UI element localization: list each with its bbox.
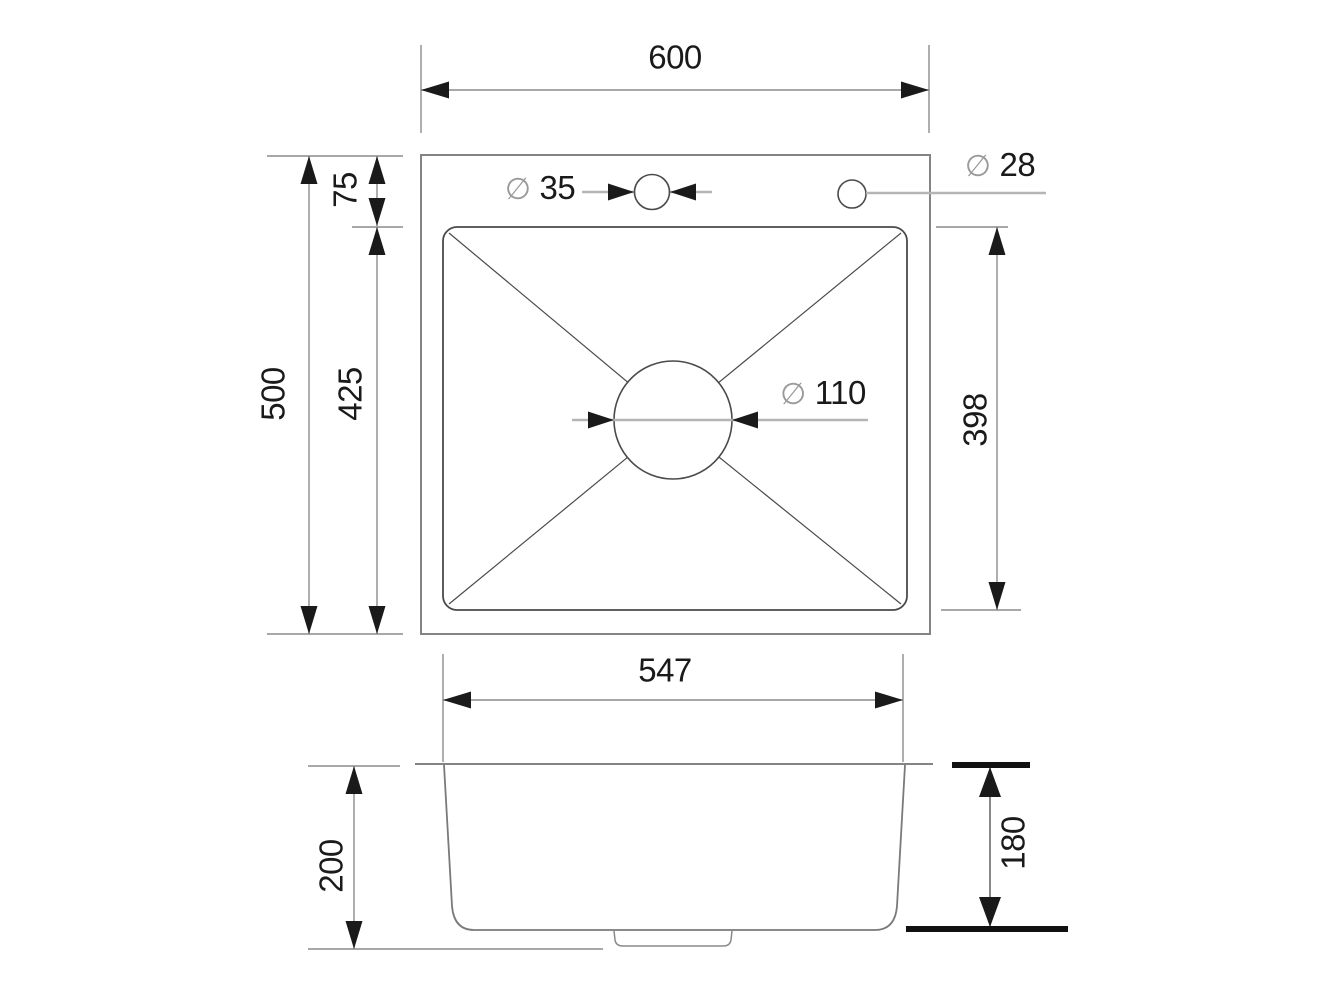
sink-technical-drawing: 600 547 500 75 425 398 200 180 ∅35 ∅28 ∅… — [0, 0, 1335, 1000]
dia-value-28: 28 — [999, 146, 1035, 183]
dim-label-180: 180 — [997, 816, 1030, 870]
dia-label-faucet: ∅35 — [505, 171, 575, 205]
dim-label-75: 75 — [329, 172, 362, 208]
dia-label-drain: ∅110 — [780, 376, 866, 410]
faucet-hole-outline — [635, 175, 670, 210]
side-view — [415, 764, 1068, 946]
dia-label-accessory: ∅28 — [965, 148, 1035, 182]
dim-label-547: 547 — [638, 654, 692, 687]
dim-label-425: 425 — [334, 367, 367, 421]
drawing-svg — [0, 0, 1335, 1000]
diameter-symbol: ∅ — [505, 173, 531, 206]
diameter-symbol: ∅ — [965, 150, 991, 183]
diameter-symbol: ∅ — [780, 378, 806, 411]
dia-value-110: 110 — [815, 374, 866, 411]
dim-label-600: 600 — [648, 41, 702, 74]
side-drain-stub — [614, 931, 732, 946]
side-body-profile — [444, 765, 905, 930]
dim-label-398: 398 — [959, 393, 992, 447]
accessory-hole-outline — [838, 180, 866, 208]
dia-value-35: 35 — [539, 169, 575, 206]
dim-label-500: 500 — [257, 367, 290, 421]
dim-label-200: 200 — [315, 839, 348, 893]
